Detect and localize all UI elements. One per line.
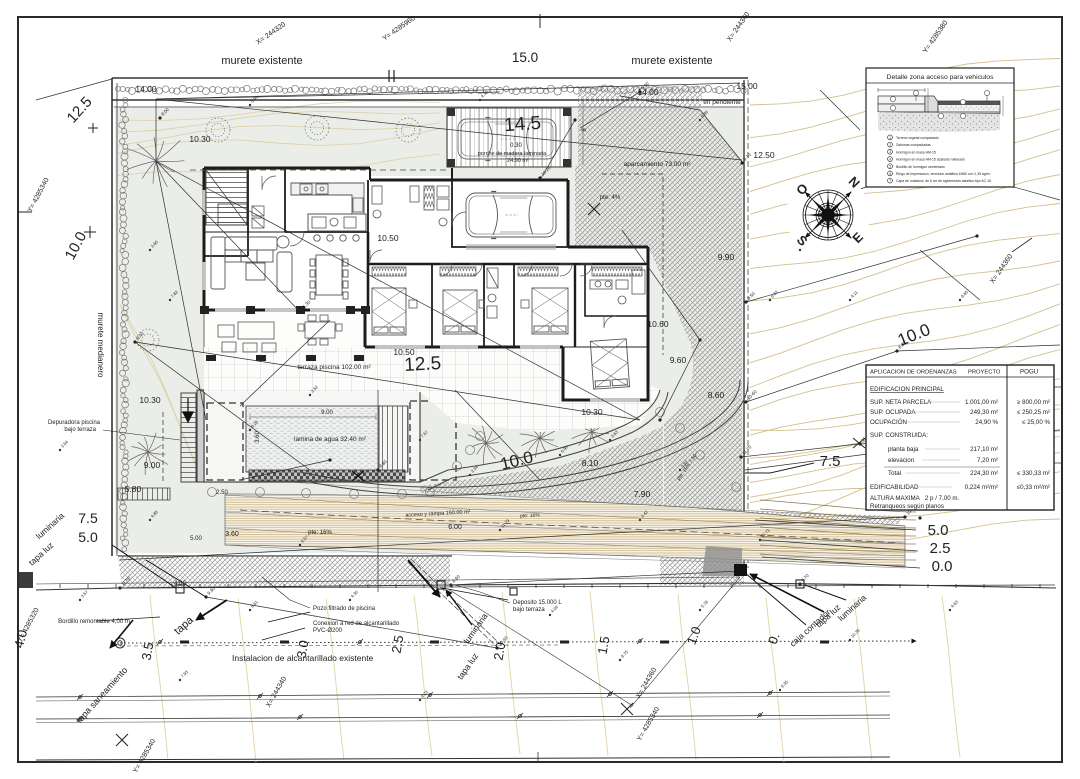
svg-text:POGU: POGU [1020, 369, 1038, 376]
svg-text:8.60: 8.60 [708, 390, 725, 400]
svg-text:SUP. NETA PARCELA: SUP. NETA PARCELA [870, 399, 932, 406]
svg-text:Deposito 15.000 L: Deposito 15.000 L [513, 600, 562, 606]
svg-text:7: 7 [889, 179, 891, 183]
svg-text:12.50: 12.50 [753, 150, 775, 160]
svg-text:7.5: 7.5 [78, 510, 98, 526]
svg-text:1.001,00 m²: 1.001,00 m² [965, 399, 998, 406]
svg-text:12.5: 12.5 [404, 353, 442, 376]
svg-text:Conexion a red de alcantarilla: Conexion a red de alcantarillado [313, 621, 400, 627]
svg-text:SUP. OCUPADA: SUP. OCUPADA [870, 409, 916, 416]
svg-text:4.00: 4.00 [174, 581, 186, 587]
svg-text:9.00: 9.00 [144, 460, 161, 470]
svg-text:SUP. CONSTRUIDA:: SUP. CONSTRUIDA: [870, 432, 928, 439]
svg-text:murete medianero: murete medianero [96, 313, 105, 378]
svg-text:EDIFICACION PRINCIPAL: EDIFICACION PRINCIPAL [870, 386, 944, 393]
svg-text:8.10: 8.10 [582, 458, 599, 468]
svg-text:en pendiente: en pendiente [703, 99, 741, 106]
svg-text:≥ 800,00 m²: ≥ 800,00 m² [1017, 399, 1050, 406]
svg-text:15.0: 15.0 [512, 50, 538, 65]
svg-text:0.0: 0.0 [932, 558, 953, 575]
svg-text:9.00: 9.00 [321, 410, 333, 416]
svg-text:24.90 m²: 24.90 m² [507, 158, 529, 164]
svg-text:14.00: 14.00 [135, 84, 157, 94]
svg-text:murete existente: murete existente [631, 55, 712, 67]
svg-text:1.5: 1.5 [595, 635, 613, 655]
svg-text:0.30: 0.30 [510, 143, 522, 149]
svg-text:≤ 25,00 %: ≤ 25,00 % [1022, 419, 1050, 426]
svg-text:5.0: 5.0 [78, 529, 98, 545]
svg-text:Hormigon en masa HM-15: Hormigon en masa HM-15 [896, 150, 936, 154]
svg-text:3.60: 3.60 [225, 531, 239, 538]
svg-text:PVC-Ø200: PVC-Ø200 [313, 628, 343, 634]
svg-text:224,30 m²: 224,30 m² [970, 470, 998, 477]
svg-text:6: 6 [889, 172, 891, 176]
svg-text:Total: Total [888, 470, 901, 477]
svg-text:2.5: 2.5 [930, 540, 951, 557]
svg-text:pte: 16%: pte: 16% [520, 512, 541, 519]
svg-text:Hormigon en masa HM-15 acabado: Hormigon en masa HM-15 acabado ruleteado [896, 158, 965, 162]
svg-text:217,10 m²: 217,10 m² [970, 446, 998, 453]
svg-text:24,90 %: 24,90 % [975, 419, 998, 426]
svg-text:≤0,33 m²/m²: ≤0,33 m²/m² [1017, 484, 1050, 491]
svg-text:planta baja: planta baja [888, 446, 919, 453]
svg-text:10.30: 10.30 [581, 407, 603, 417]
svg-text:Pozo filtrado de piscina: Pozo filtrado de piscina [313, 606, 376, 612]
svg-text:Capa de rodadura, de 6 cm de a: Capa de rodadura, de 6 cm de aglomerado … [896, 179, 991, 183]
svg-text:aparcamiento 73.00 m²: aparcamiento 73.00 m² [624, 161, 692, 168]
svg-text:bajo terraza: bajo terraza [64, 427, 96, 433]
svg-text:0,224 m²/m²: 0,224 m²/m² [965, 484, 998, 491]
svg-text:2.50: 2.50 [216, 490, 228, 496]
svg-text:7.5: 7.5 [820, 453, 841, 470]
svg-text:terraza piscina 102.00 m²: terraza piscina 102.00 m² [297, 364, 371, 371]
svg-text:3.5: 3.5 [139, 641, 157, 661]
svg-text:5.00: 5.00 [190, 536, 202, 542]
svg-text:EDIFICABILIDAD: EDIFICABILIDAD [870, 484, 919, 491]
svg-text:2.0: 2.0 [491, 641, 509, 661]
svg-text:≤ 330,33 m²: ≤ 330,33 m² [1017, 470, 1050, 477]
svg-text:9.60: 9.60 [670, 355, 687, 365]
svg-text:2: 2 [889, 143, 891, 147]
svg-text:14.00: 14.00 [637, 87, 659, 97]
svg-text:Detalle zona acceso para vehic: Detalle zona acceso para vehiculos [887, 74, 995, 81]
svg-text:3.0: 3.0 [294, 639, 312, 659]
svg-text:7.90: 7.90 [634, 489, 651, 499]
svg-text:5: 5 [889, 165, 891, 169]
svg-text:6.00: 6.00 [448, 524, 462, 531]
svg-text:pte: 4%: pte: 4% [600, 195, 621, 201]
svg-text:bajo terraza: bajo terraza [513, 607, 545, 613]
svg-text:OCUPACIÓN: OCUPACIÓN [870, 419, 907, 426]
svg-text:9.90: 9.90 [718, 252, 735, 262]
svg-text:murete existente: murete existente [221, 55, 302, 67]
svg-text:Terreno vegetal compactado: Terreno vegetal compactado [896, 136, 939, 140]
svg-text:Depuradora piscina: Depuradora piscina [48, 420, 101, 426]
svg-text:3: 3 [889, 150, 891, 154]
svg-text:pte: 16%: pte: 16% [308, 530, 332, 536]
svg-text:≤ 250,25 m²: ≤ 250,25 m² [1017, 409, 1050, 416]
svg-text:10.60: 10.60 [647, 319, 669, 329]
svg-text:1: 1 [889, 136, 891, 140]
svg-text:249,30 m²: 249,30 m² [970, 409, 998, 416]
svg-text:3.60: 3.60 [255, 431, 261, 443]
svg-text:10.30: 10.30 [189, 134, 211, 144]
svg-text:5.80: 5.80 [125, 484, 142, 494]
svg-text:Bordillo de hormigon cementado: Bordillo de hormigon cementado [896, 165, 945, 169]
svg-text:7,20 m²: 7,20 m² [977, 457, 998, 464]
svg-text:elevacion: elevacion [888, 457, 915, 464]
svg-text:10.30: 10.30 [139, 395, 161, 405]
svg-text:Riego de imprimacion, emulsion: Riego de imprimacion, emulsion asfaltica… [896, 172, 991, 176]
svg-text:Zahorras compactadas: Zahorras compactadas [896, 143, 931, 147]
svg-text:ALTURA MAXIMA 2 p / 7,00 m.: ALTURA MAXIMA 2 p / 7,00 m. [870, 495, 960, 502]
svg-text:10.50: 10.50 [377, 233, 399, 243]
svg-text:2.5: 2.5 [389, 634, 407, 654]
svg-text:PROYECTO: PROYECTO [968, 370, 1001, 376]
svg-text:14.5: 14.5 [503, 113, 541, 137]
svg-text:lamina de agua 32.40 m²: lamina de agua 32.40 m² [294, 436, 367, 443]
svg-text:5.0: 5.0 [928, 522, 949, 539]
svg-text:Bordillo remontable 4,00 m: Bordillo remontable 4,00 m [58, 619, 130, 625]
svg-text:15.00: 15.00 [736, 81, 758, 91]
svg-text:Retranqueos según planos: Retranqueos según planos [870, 503, 944, 510]
svg-text:4: 4 [889, 157, 891, 161]
svg-text:porche de madera laminada: porche de madera laminada [478, 151, 547, 157]
svg-text:APLICACION DE ORDENANZAS: APLICACION DE ORDENANZAS [870, 370, 957, 376]
